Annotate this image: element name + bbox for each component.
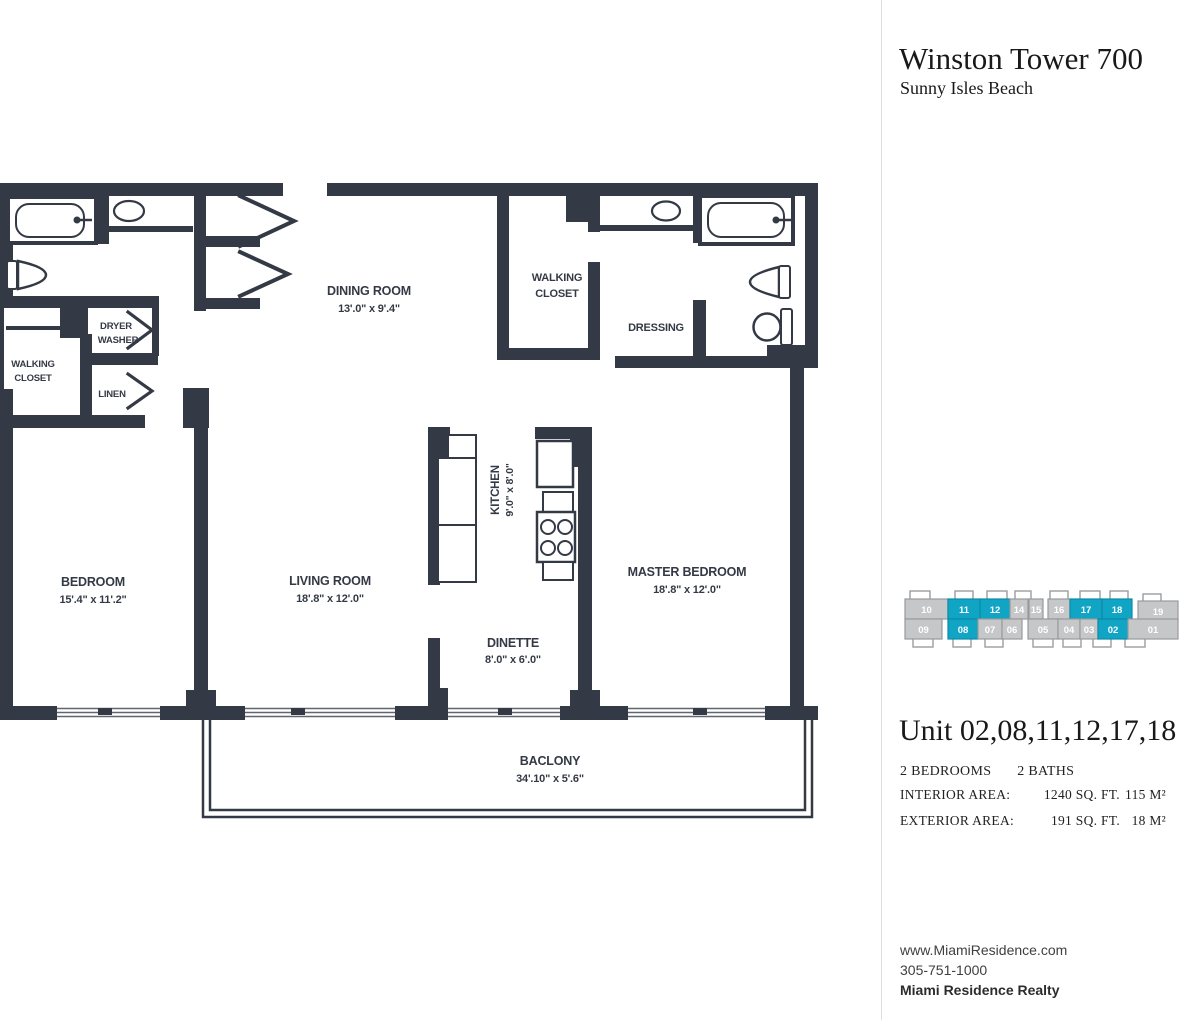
bathtub-left [8, 197, 96, 243]
stove [537, 512, 575, 562]
walking-closet-label-2: CLOSET [535, 288, 579, 300]
svg-text:06: 06 [1007, 625, 1018, 636]
hall-closet-door2-icon [240, 252, 288, 296]
dinette-label: DINETTE [487, 636, 539, 650]
exterior-area-sqft: 191 SQ. FT. [1028, 813, 1120, 829]
interior-area-m2: 115 M² [1120, 787, 1166, 803]
svg-text:08: 08 [958, 625, 969, 636]
toilet-master [754, 309, 793, 345]
dressing-label: DRESSING [628, 322, 684, 334]
unit-title: Unit 02,08,11,12,17,18 [899, 714, 1176, 748]
walking-closet-left-label-1: WALKING [11, 359, 54, 370]
building-title: Winston Tower 700 [899, 41, 1143, 77]
kitchen-label: KITCHEN 9'.0" x 8'.0" [490, 463, 516, 516]
living-room-label: LIVING ROOM [289, 574, 371, 588]
svg-text:10: 10 [921, 605, 932, 616]
svg-text:09: 09 [918, 625, 929, 636]
walking-closet-left-label-2: CLOSET [14, 373, 52, 384]
bedroom-label: BEDROOM [61, 575, 125, 589]
svg-text:02: 02 [1108, 625, 1119, 636]
svg-text:17: 17 [1081, 605, 1092, 616]
interior-area-sqft: 1240 SQ. FT. [1028, 787, 1120, 803]
svg-text:07: 07 [985, 625, 996, 636]
bathtub-master [700, 196, 793, 244]
master-bedroom-dims: 18'.8" x 12'.0" [653, 584, 721, 596]
bidet-master [750, 266, 790, 298]
bedrooms-count: 2 BEDROOMS [900, 764, 991, 779]
exterior-area-label: EXTERIOR AREA: [900, 813, 1028, 829]
toilet-left [7, 261, 46, 289]
washer-label: WASHER [98, 335, 139, 346]
svg-text:04: 04 [1064, 625, 1075, 636]
exterior-area-m2: 18 M² [1120, 813, 1166, 829]
sink-dressing [652, 202, 680, 221]
dining-room-label: DINING ROOM [327, 284, 411, 298]
linen-door-icon [128, 374, 152, 408]
svg-text:05: 05 [1038, 625, 1049, 636]
svg-text:KITCHEN: KITCHEN [490, 465, 502, 515]
svg-text:9'.0" x 8'.0": 9'.0" x 8'.0" [504, 463, 516, 516]
interior-area-label: INTERIOR AREA: [900, 787, 1028, 803]
svg-text:16: 16 [1054, 605, 1065, 616]
dining-room-dims: 13'.0" x 9'.4" [338, 303, 400, 315]
balcony-outline [203, 720, 812, 817]
footer-phone: 305-751-1000 [900, 962, 987, 978]
sink-left [114, 201, 144, 221]
dryer-label: DRYER [100, 321, 132, 332]
fridge [537, 441, 573, 487]
master-bedroom-label: MASTER BEDROOM [628, 565, 747, 579]
unit-row-top: 10 11 12 14 15 16 17 18 19 [905, 599, 1178, 621]
living-room-dims: 18'.8" x 12'.0" [296, 593, 364, 605]
svg-text:03: 03 [1084, 625, 1095, 636]
svg-text:12: 12 [990, 605, 1001, 616]
bedroom-dims: 15'.4" x 11'.2" [59, 594, 126, 606]
dinette-dims: 8'.0" x 6'.0" [485, 654, 541, 666]
walking-closet-label-1: WALKING [532, 272, 583, 284]
svg-text:01: 01 [1148, 625, 1159, 636]
footer-website: www.MiamiResidence.com [900, 942, 1067, 958]
svg-text:14: 14 [1014, 605, 1025, 616]
walls [0, 183, 818, 720]
svg-text:15: 15 [1031, 605, 1042, 616]
unit-row-bottom: 09 08 07 06 05 04 03 02 01 [905, 619, 1178, 639]
specs-row: 2 BEDROOMS2 BATHS [900, 764, 1074, 780]
linen-label: LINEN [98, 389, 126, 400]
interior-area-row: INTERIOR AREA: 1240 SQ. FT. 115 M² [900, 787, 1166, 803]
svg-text:11: 11 [959, 605, 970, 616]
panel-divider [881, 0, 882, 1020]
svg-text:19: 19 [1153, 607, 1164, 618]
exterior-area-row: EXTERIOR AREA: 191 SQ. FT. 18 M² [900, 813, 1166, 829]
balcony-dims: 34'.10" x 5'.6" [516, 773, 584, 785]
balcony-label: BACLONY [520, 754, 581, 768]
floor-plan: BEDROOM 15'.4" x 11'.2" LIVING ROOM 18'.… [0, 0, 830, 1020]
footer-company: Miami Residence Realty [900, 982, 1060, 998]
svg-text:18: 18 [1112, 605, 1123, 616]
unit-map: 10 11 12 14 15 16 17 18 19 09 08 07 06 0… [895, 582, 1190, 652]
building-location: Sunny Isles Beach [900, 78, 1033, 99]
baths-count: 2 BATHS [1017, 764, 1074, 779]
